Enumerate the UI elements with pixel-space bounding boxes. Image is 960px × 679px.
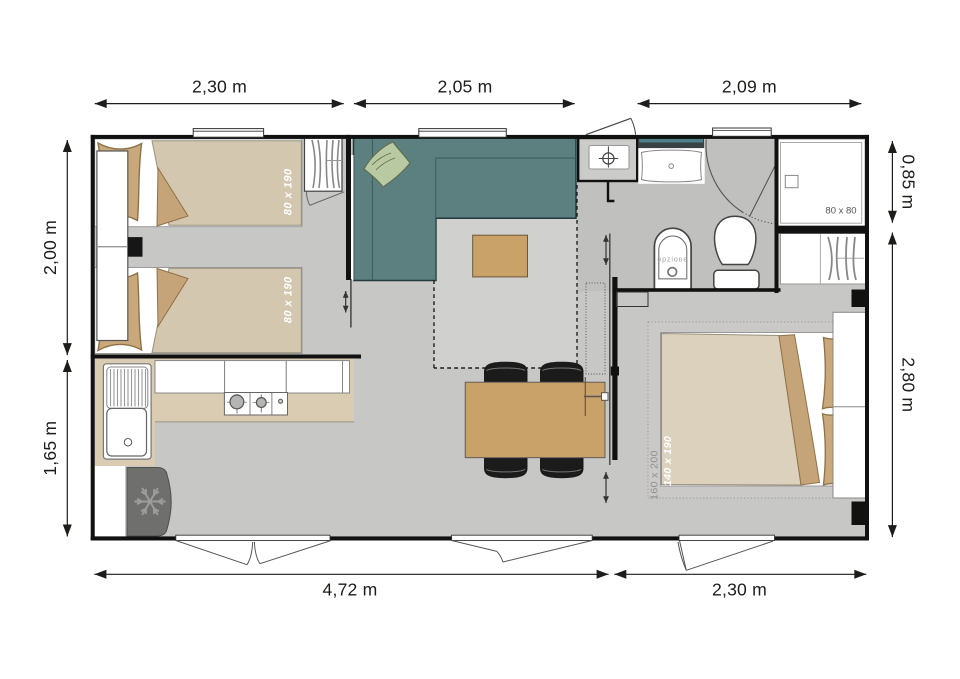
svg-text:160 x 200: 160 x 200 [648, 450, 660, 500]
svg-text:0,85 m: 0,85 m [898, 154, 918, 209]
svg-text:2,30 m: 2,30 m [192, 77, 247, 97]
svg-text:2,80 m: 2,80 m [898, 357, 918, 412]
svg-text:80 x 80: 80 x 80 [825, 206, 856, 217]
svg-text:4,72 m: 4,72 m [323, 580, 378, 600]
svg-text:80 x 190: 80 x 190 [282, 168, 294, 215]
svg-text:140 x 190: 140 x 190 [662, 436, 674, 486]
svg-text:2,30 m: 2,30 m [712, 580, 767, 600]
svg-text:2,05 m: 2,05 m [438, 77, 493, 97]
svg-text:80 x 190: 80 x 190 [282, 276, 294, 323]
svg-text:1,65 m: 1,65 m [40, 421, 60, 476]
svg-text:opzione: opzione [657, 256, 688, 263]
svg-text:2,00 m: 2,00 m [40, 220, 60, 275]
svg-text:2,09 m: 2,09 m [722, 77, 777, 97]
